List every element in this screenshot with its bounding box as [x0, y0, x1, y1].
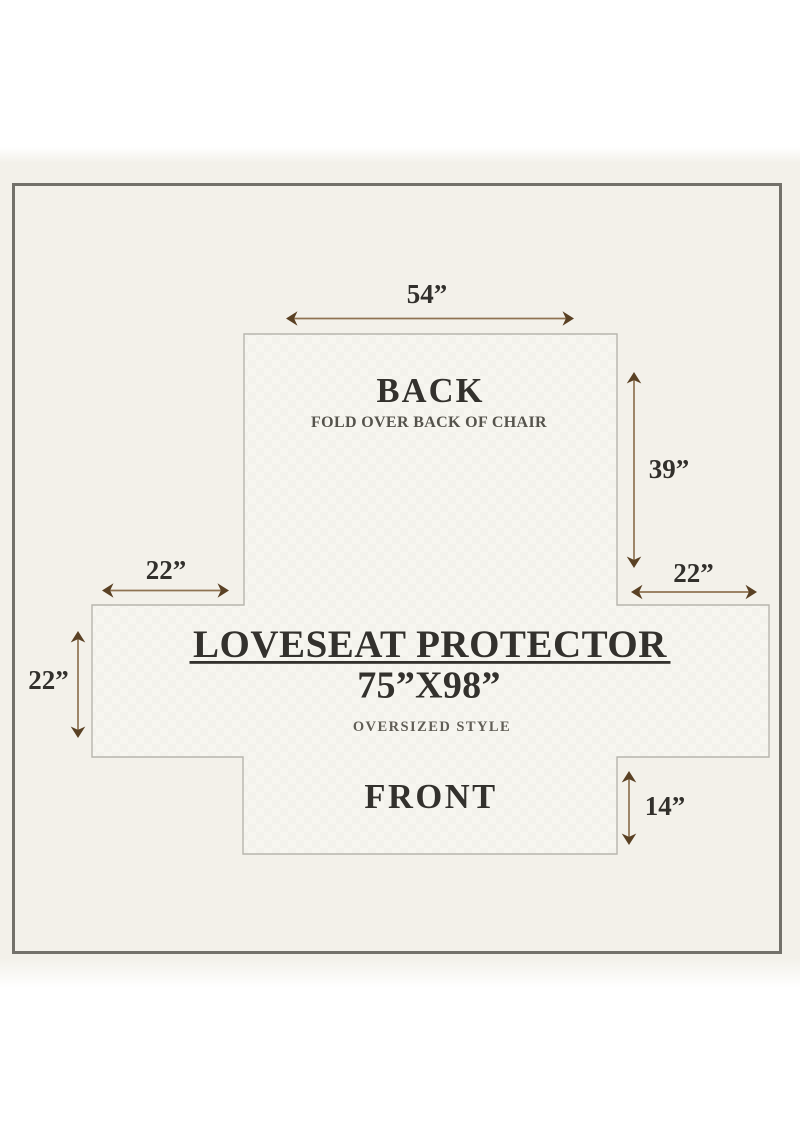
svg-text:14”: 14”: [645, 791, 686, 821]
svg-text:54”: 54”: [407, 279, 448, 309]
svg-text:22”: 22”: [673, 558, 714, 588]
svg-text:22”: 22”: [146, 555, 187, 585]
svg-text:LOVESEAT PROTECTOR: LOVESEAT PROTECTOR: [193, 623, 667, 666]
svg-text:22”: 22”: [28, 665, 69, 695]
svg-text:75”X98”: 75”X98”: [357, 665, 501, 707]
svg-text:FRONT: FRONT: [364, 778, 497, 816]
svg-text:OVERSIZED STYLE: OVERSIZED STYLE: [353, 719, 511, 735]
svg-text:BACK: BACK: [376, 372, 484, 410]
svg-text:39”: 39”: [649, 454, 690, 484]
svg-text:FOLD OVER BACK OF CHAIR: FOLD OVER BACK OF CHAIR: [311, 414, 547, 431]
